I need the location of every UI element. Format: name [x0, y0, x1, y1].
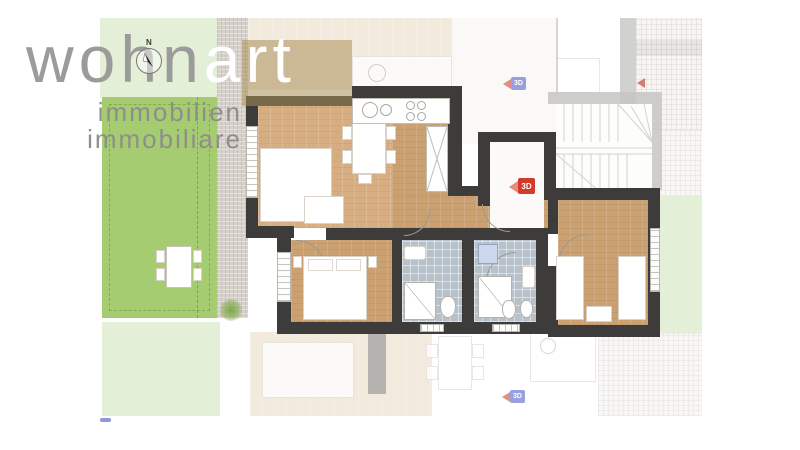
pillow: [308, 259, 333, 271]
wall: [548, 200, 558, 234]
right-garden-faded: [658, 196, 702, 334]
garden-table: [166, 246, 192, 288]
window: [492, 324, 520, 332]
stove-burner-icon: [406, 101, 415, 110]
lower-unit-kitchen: [530, 332, 596, 382]
wall: [326, 228, 392, 240]
tour-arrow-icon: [502, 392, 510, 402]
window: [277, 252, 291, 302]
wall: [536, 240, 548, 334]
window: [650, 228, 660, 292]
dimension-mark: [100, 418, 111, 422]
lower-unit-chair: [472, 366, 484, 380]
wall: [392, 240, 402, 322]
dining-chair: [386, 126, 396, 140]
brand-subtitle-it: immobiliare: [20, 124, 242, 155]
bathroom2-toilet: [502, 300, 516, 319]
upper-sink-icon: [368, 64, 386, 82]
garden-chair: [156, 268, 165, 281]
floorplan-canvas: 3D 3D 3D wohnart immobilien immobiliare …: [0, 0, 800, 450]
wall: [352, 86, 462, 98]
bush: [219, 299, 243, 321]
lower-unit-wall: [368, 330, 386, 394]
brand-logo-wohn: wohn: [26, 22, 204, 96]
tour-3d-badge-lower[interactable]: 3D: [510, 390, 525, 403]
wall: [548, 325, 660, 337]
dining-chair: [342, 126, 352, 140]
bathroom1-shower: [404, 282, 436, 320]
bathroom2-sink: [522, 266, 535, 288]
kitchen-sink-icon: [362, 102, 378, 118]
bed-single-left: [556, 256, 584, 320]
wall: [246, 226, 294, 238]
garden-chair: [193, 250, 202, 263]
lower-unit-sofa: [262, 342, 354, 398]
wall: [448, 96, 462, 196]
staircase: [556, 104, 652, 192]
wall: [462, 240, 474, 322]
tour-arrow-icon: [509, 181, 518, 193]
tour-arrow-icon: [503, 79, 511, 89]
stove-burner-icon: [406, 112, 415, 121]
lower-unit-table: [438, 336, 472, 390]
stove-burner-icon: [417, 112, 426, 121]
lower-sink-icon: [540, 338, 556, 354]
tour-3d-badge-upper[interactable]: 3D: [511, 77, 526, 90]
dining-table: [352, 120, 386, 174]
viewpoint-arrow-icon: [637, 78, 645, 88]
washing-machine: [478, 244, 498, 264]
compass-icon: [136, 48, 162, 74]
wall: [478, 142, 490, 206]
garden-chair: [193, 268, 202, 281]
kitchen-sink-icon: [380, 104, 392, 116]
stairwell-wall-faded: [548, 92, 662, 104]
stove-burner-icon: [417, 101, 426, 110]
terrace-paving-faded: [660, 130, 702, 196]
dining-chair: [342, 150, 352, 164]
wall: [448, 186, 482, 196]
tour-3d-badge-main[interactable]: 3D: [518, 178, 535, 194]
pillow: [336, 259, 361, 271]
nightstand: [293, 256, 302, 268]
window: [246, 126, 258, 198]
dresser: [586, 306, 612, 322]
brand-logo-art: art: [204, 22, 296, 96]
lower-unit-chair: [472, 344, 484, 358]
wall: [544, 188, 660, 200]
compass-north-label: N: [146, 38, 152, 47]
lower-unit-chair: [426, 344, 438, 358]
window: [420, 324, 444, 332]
dining-chair: [386, 150, 396, 164]
bathroom1-sink: [404, 246, 426, 260]
lower-unit-chair: [426, 366, 438, 380]
bathroom2-bidet: [520, 300, 533, 318]
dining-chair: [358, 174, 372, 184]
bed-single-right: [618, 256, 646, 320]
nightstand: [368, 256, 377, 268]
kitchen-tall-cabinet: [426, 126, 448, 192]
lower-garden-faded: [102, 322, 220, 416]
lower-terrace-faded: [598, 332, 702, 416]
bathroom1-toilet: [440, 296, 456, 318]
ottoman: [304, 196, 344, 224]
garden-chair: [156, 250, 165, 263]
